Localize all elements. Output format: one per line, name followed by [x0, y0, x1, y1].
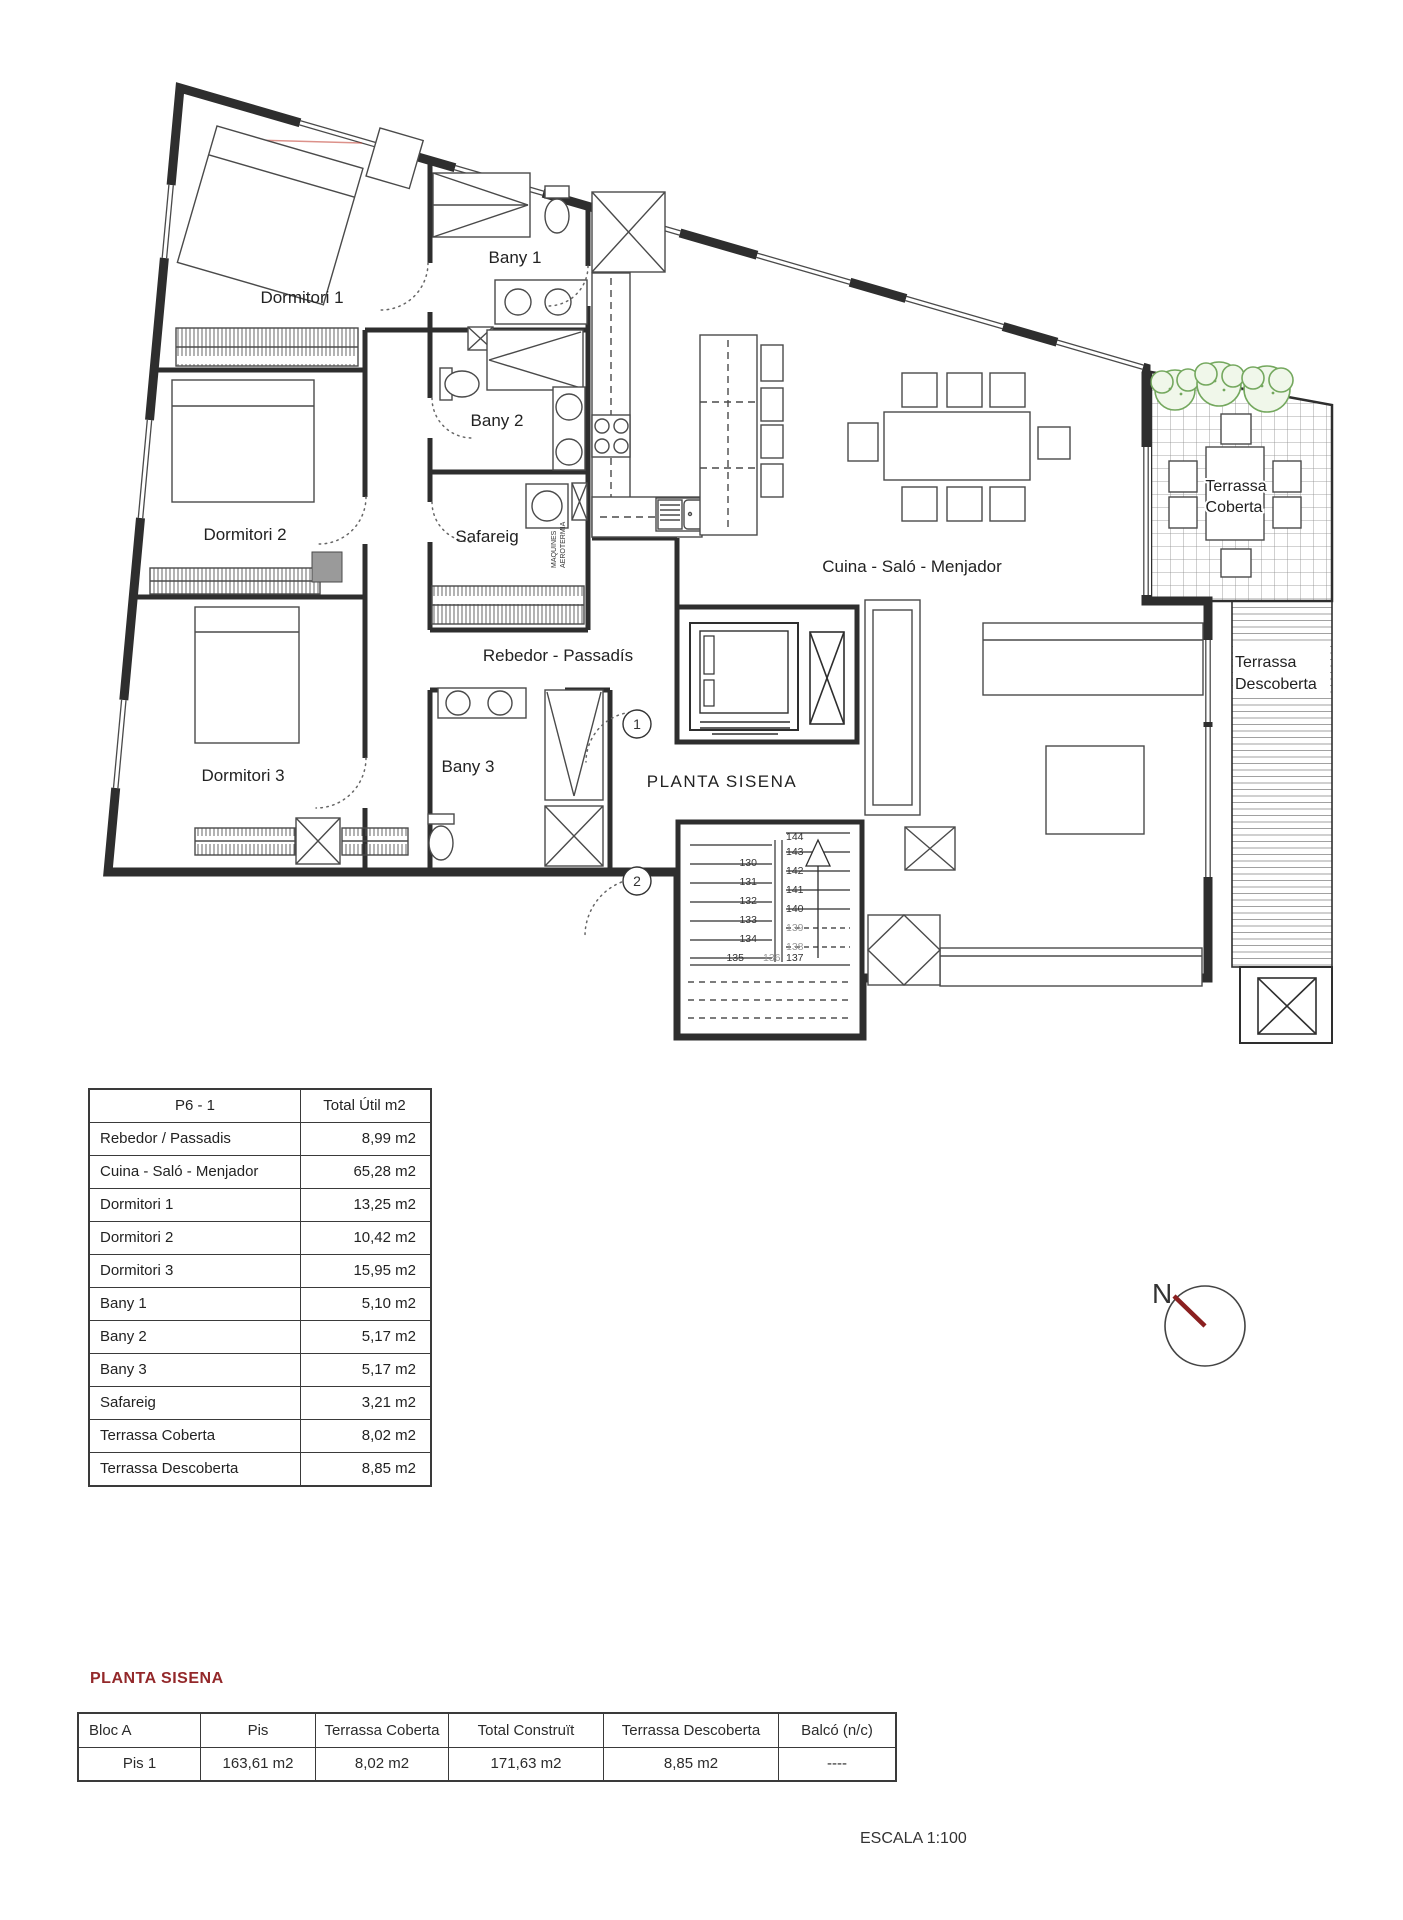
- elevator-shaft-x: [810, 632, 844, 724]
- stair-number: 131: [739, 876, 757, 888]
- summary-val-bloc: Pis 1: [79, 1748, 200, 1780]
- row-label: Terrassa Coberta: [90, 1420, 301, 1452]
- row-label: Bany 2: [90, 1321, 301, 1353]
- stair-number: 139: [786, 922, 804, 934]
- row-value: 3,21 m2: [301, 1387, 428, 1419]
- stair-number: 144: [786, 831, 804, 843]
- summary-val-terrassa-descoberta: 8,85 m2: [603, 1748, 778, 1780]
- room-label-bany3: Bany 3: [442, 757, 495, 776]
- stair-number: 138: [786, 941, 804, 953]
- stair-number: 142: [786, 865, 804, 877]
- table-row: Bany 35,17 m2: [90, 1353, 430, 1386]
- row-value: 15,95 m2: [301, 1255, 428, 1287]
- row-value: 10,42 m2: [301, 1222, 428, 1254]
- pillar: [312, 552, 342, 582]
- row-value: 5,17 m2: [301, 1354, 428, 1386]
- plan-floor-label: PLANTA SISENA: [647, 772, 798, 791]
- row-value: 8,85 m2: [301, 1453, 428, 1485]
- stair-number: 135: [726, 952, 744, 964]
- elevator: [677, 607, 857, 742]
- table-row: Dormitori 113,25 m2: [90, 1188, 430, 1221]
- stair-number: 132: [739, 895, 757, 907]
- summary-val-balco: ----: [778, 1748, 895, 1780]
- row-label: Bany 3: [90, 1354, 301, 1386]
- stair-number: 141: [786, 884, 804, 896]
- summary-table-header: Bloc A Pis Terrassa Coberta Total Constr…: [79, 1714, 895, 1748]
- kitchen-island: [700, 335, 757, 535]
- summary-col-terrassa-coberta: Terrassa Coberta: [315, 1714, 448, 1747]
- stair-number: 136: [763, 952, 781, 964]
- stair-number: 140: [786, 903, 804, 915]
- table-row: Cuina - Saló - Menjador65,28 m2: [90, 1155, 430, 1188]
- row-value: 5,17 m2: [301, 1321, 428, 1353]
- stair-number: 133: [739, 914, 757, 926]
- summary-col-terrassa-descoberta: Terrassa Descoberta: [603, 1714, 778, 1747]
- terrassa-descoberta-label-line2: Descoberta: [1235, 676, 1317, 693]
- stair-number: 143: [786, 846, 804, 858]
- section-marker-2: 2: [623, 867, 651, 895]
- summary-col-pis: Pis: [200, 1714, 315, 1747]
- stair-number: 134: [739, 933, 757, 945]
- shaft-x-box: [545, 806, 603, 866]
- maquines-text: MAQUINES: [551, 530, 558, 568]
- compass-north-label: N: [1152, 1278, 1172, 1309]
- stair-number: 130: [739, 857, 757, 869]
- shaft-x-box: [1258, 978, 1316, 1034]
- compass: N: [1152, 1278, 1245, 1366]
- summary-val-pis: 163,61 m2: [200, 1748, 315, 1780]
- bar-stools: [761, 345, 783, 497]
- terrassa-coberta-label-line2: Coberta: [1206, 499, 1263, 516]
- dormitori3-furniture: [195, 607, 299, 743]
- terrassa-descoberta-area: Terrassa Descoberta: [1232, 601, 1332, 1043]
- room-label-bany2: Bany 2: [471, 411, 524, 430]
- area-table-header: P6 - 1 Total Útil m2: [90, 1090, 430, 1122]
- room-label-rebedor: Rebedor - Passadís: [483, 646, 633, 665]
- table-row: Rebedor / Passadis8,99 m2: [90, 1122, 430, 1155]
- summary-heading: PLANTA SISENA: [90, 1670, 224, 1688]
- summary-table: Bloc A Pis Terrassa Coberta Total Constr…: [77, 1712, 897, 1782]
- table-row: Dormitori 315,95 m2: [90, 1254, 430, 1287]
- floor-plan-page: Terrassa Coberta Terrassa Descoberta: [0, 0, 1403, 1920]
- summary-val-terrassa-coberta: 8,02 m2: [315, 1748, 448, 1780]
- summary-col-bloc: Bloc A: [79, 1714, 200, 1747]
- section-marker-1: 1: [623, 710, 651, 738]
- area-table: P6 - 1 Total Útil m2 Rebedor / Passadis8…: [88, 1088, 432, 1487]
- area-table-header-name: P6 - 1: [90, 1090, 301, 1122]
- section-marker-1-label: 1: [633, 716, 641, 732]
- summary-val-total-construit: 171,63 m2: [448, 1748, 603, 1780]
- section-marker-2-label: 2: [633, 873, 641, 889]
- room-label-cuina: Cuina - Saló - Menjador: [822, 557, 1002, 576]
- summary-col-balco: Balcó (n/c): [778, 1714, 895, 1747]
- aerotermia-text: AEROTERMIA: [560, 521, 567, 568]
- summary-col-total-construit: Total Construït: [448, 1714, 603, 1747]
- room-label-bany1: Bany 1: [489, 248, 542, 267]
- shaft-x-box: [592, 192, 665, 272]
- table-row: Terrassa Descoberta8,85 m2: [90, 1452, 430, 1485]
- table-row: Terrassa Coberta8,02 m2: [90, 1419, 430, 1452]
- table-row: Bany 15,10 m2: [90, 1287, 430, 1320]
- row-label: Safareig: [90, 1387, 301, 1419]
- row-label: Dormitori 2: [90, 1222, 301, 1254]
- stair-number: 137: [786, 952, 804, 964]
- row-value: 8,02 m2: [301, 1420, 428, 1452]
- terrassa-coberta-area: Terrassa Coberta: [1151, 362, 1332, 601]
- bush-icons: [1151, 362, 1293, 412]
- table-row: Bany 25,17 m2: [90, 1320, 430, 1353]
- table-row: Safareig3,21 m2: [90, 1386, 430, 1419]
- row-value: 5,10 m2: [301, 1288, 428, 1320]
- row-value: 13,25 m2: [301, 1189, 428, 1221]
- dormitori2-furniture: [172, 380, 314, 502]
- row-label: Cuina - Saló - Menjador: [90, 1156, 301, 1188]
- row-label: Terrassa Descoberta: [90, 1453, 301, 1485]
- row-value: 65,28 m2: [301, 1156, 428, 1188]
- row-label: Bany 1: [90, 1288, 301, 1320]
- room-label-dormitori1: Dormitori 1: [260, 288, 343, 307]
- terrassa-coberta-label-line1: Terrassa: [1205, 478, 1266, 495]
- summary-table-row: Pis 1 163,61 m2 8,02 m2 171,63 m2 8,85 m…: [79, 1748, 895, 1780]
- row-value: 8,99 m2: [301, 1123, 428, 1155]
- scale-label: ESCALA 1:100: [860, 1830, 967, 1848]
- room-label-dormitori3: Dormitori 3: [201, 766, 284, 785]
- row-label: Rebedor / Passadis: [90, 1123, 301, 1155]
- staircase: [678, 822, 862, 1036]
- area-table-header-value: Total Útil m2: [301, 1090, 428, 1122]
- row-label: Dormitori 3: [90, 1255, 301, 1287]
- shaft-x-box: [905, 827, 955, 870]
- room-label-dormitori2: Dormitori 2: [203, 525, 286, 544]
- room-label-safareig: Safareig: [455, 527, 518, 546]
- compass-needle: [1174, 1296, 1205, 1326]
- terrassa-descoberta-label-line1: Terrassa: [1235, 654, 1296, 671]
- table-row: Dormitori 210,42 m2: [90, 1221, 430, 1254]
- row-label: Dormitori 1: [90, 1189, 301, 1221]
